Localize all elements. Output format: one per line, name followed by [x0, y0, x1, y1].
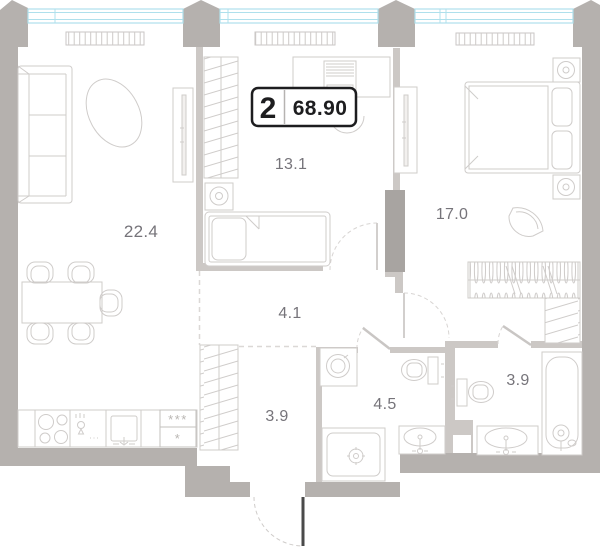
label-bathroom-main-area: 4.5	[373, 396, 396, 413]
windows	[28, 9, 573, 23]
radiator-bedroom-master	[456, 33, 534, 45]
wall-right	[582, 40, 600, 473]
toilet-second	[451, 379, 494, 406]
label-bathroom-second-area: 3.9	[506, 372, 529, 389]
label-hallway-area: 4.1	[278, 305, 301, 322]
label-living-area: 22.4	[124, 222, 158, 241]
pillar-top-mid-left	[183, 0, 220, 47]
label-bedroom-small-area: 13.1	[275, 156, 307, 173]
floor-plan: *** * 22.4 13.1	[0, 0, 600, 547]
bedroom-master: 17.0	[394, 58, 580, 343]
badge-total-area: 68.90	[293, 97, 348, 120]
sink-main	[399, 426, 445, 454]
bed-double	[465, 82, 580, 173]
door-bedroom-master	[404, 293, 449, 338]
window-bedroom-master	[415, 9, 573, 23]
area-badge: 2 68.90	[252, 88, 356, 126]
wall-bottom-right	[400, 453, 600, 473]
corridor: 3.9	[200, 345, 289, 450]
door-bedroom-small	[330, 223, 377, 270]
tv-bedroom	[394, 87, 417, 173]
nightstand-bottom	[553, 175, 580, 199]
wall-bath-second-top-left	[455, 341, 498, 348]
window-living	[28, 9, 183, 23]
fridge: *** *	[160, 410, 196, 447]
wardrobe-corridor	[200, 345, 238, 450]
label-bedroom-master-area: 17.0	[436, 206, 468, 223]
wall-bottom-left	[0, 448, 197, 466]
open-wardrobe-rail	[468, 262, 580, 298]
wall-entrance-left	[185, 466, 250, 497]
nightstand-bedroom-small	[205, 183, 233, 210]
wardrobe-bedroom-small	[204, 57, 238, 178]
floor-plan-svg: *** * 22.4 13.1	[0, 0, 600, 547]
armchair	[509, 208, 543, 237]
wall-bath-main-top-right	[390, 347, 445, 353]
wardrobe-corner	[545, 298, 580, 343]
pillar-top-right	[573, 0, 600, 47]
wall-stub-b	[395, 277, 403, 293]
radiator-bedroom-small	[255, 32, 335, 45]
sofa	[18, 66, 72, 203]
door-bathroom-main	[357, 327, 390, 349]
pillar-top-mid-right	[378, 0, 415, 47]
door-bathroom-second	[498, 326, 531, 345]
window-bedroom-small	[220, 9, 378, 23]
shower	[322, 428, 385, 481]
wall-entrance-right	[305, 482, 400, 497]
radiator-living	[66, 32, 144, 45]
freezer-marks: ***	[168, 412, 188, 427]
wall-hall-bedroom-dark	[385, 190, 405, 272]
washing-machine	[320, 348, 357, 386]
dining-set	[22, 262, 122, 344]
living-room: *** * 22.4	[18, 66, 197, 447]
fridge-mark: *	[175, 431, 182, 446]
wall-living-bedroom-small	[196, 47, 203, 268]
door-entrance	[254, 497, 303, 546]
bed-single	[205, 212, 330, 266]
oval-rug	[75, 69, 153, 156]
wall-left	[0, 40, 18, 466]
badge-rooms-count: 2	[260, 92, 277, 125]
toilet-main	[402, 357, 445, 384]
pillar-top-left	[0, 0, 28, 47]
kitchen-counter: *** *	[18, 410, 197, 447]
radiators	[66, 32, 534, 45]
nightstand-top	[553, 58, 580, 82]
hallway: 4.1	[278, 305, 301, 322]
sink-second	[477, 426, 538, 455]
duct-notch	[453, 435, 471, 453]
dining-table	[22, 282, 102, 323]
label-corridor-area: 3.9	[265, 408, 288, 425]
tv-stand-living	[173, 88, 193, 182]
bathtub	[542, 352, 582, 455]
wall-stub-a	[385, 272, 403, 277]
